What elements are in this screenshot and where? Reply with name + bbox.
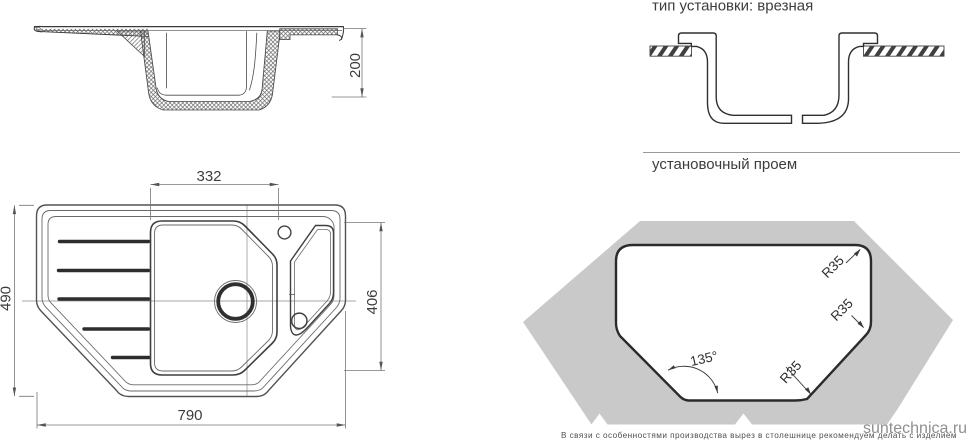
svg-text:490: 490 xyxy=(0,286,15,311)
svg-text:332: 332 xyxy=(196,168,221,185)
svg-text:790: 790 xyxy=(177,407,202,424)
svg-text:200: 200 xyxy=(347,53,364,78)
svg-text:тип установки: врезная: тип установки: врезная xyxy=(652,0,813,15)
svg-text:406: 406 xyxy=(364,289,381,314)
svg-text:suntechnica.ru: suntechnica.ru xyxy=(863,420,967,437)
svg-text:установочный проем: установочный проем xyxy=(652,156,797,173)
